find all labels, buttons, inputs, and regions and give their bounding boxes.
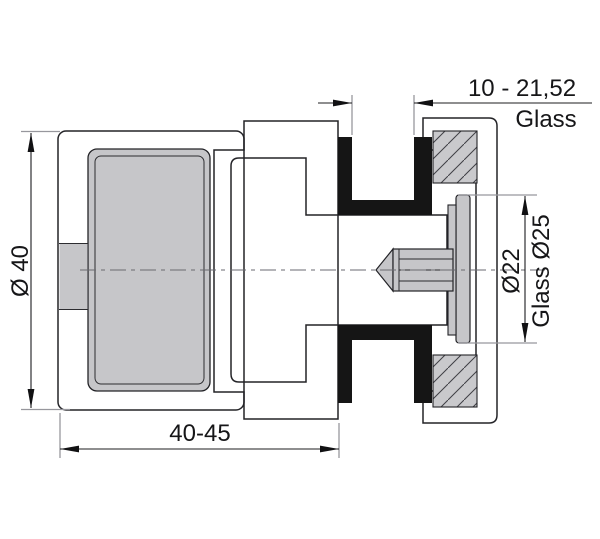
dimension-boss-and-glass-hole: Ø22 Glass Ø25 <box>458 195 555 343</box>
glass-clamp-section-drawing: Ø 40 40-45 10 - 21,52 Glass Ø22 Glass Ø2… <box>0 0 600 539</box>
side-mount-hole <box>60 244 88 310</box>
arrow-down-icon <box>28 389 35 408</box>
glass-hole-diameter-label: Glass Ø25 <box>528 214 555 327</box>
dimension-glass-thickness: 10 - 21,52 Glass <box>318 75 592 135</box>
glass-thickness-label: 10 - 21,52 <box>468 75 576 102</box>
body-diameter-label: Ø 40 <box>7 245 34 297</box>
body-length-label: 40-45 <box>169 420 230 447</box>
arrow-left-icon <box>414 100 433 107</box>
gasket-top <box>338 137 432 215</box>
arrow-up-icon <box>522 196 529 215</box>
gasket-bottom <box>338 325 432 403</box>
arrow-right-icon <box>333 100 352 107</box>
arrow-right-icon <box>320 446 339 453</box>
plate-retainer-bottom <box>433 355 477 407</box>
arrow-up-icon <box>28 133 35 152</box>
boss-diameter-label: Ø22 <box>498 248 525 293</box>
glass-word-label: Glass <box>515 106 576 133</box>
glass-thickness-extension-lines <box>352 95 414 135</box>
plate-retainer-top <box>433 131 477 183</box>
arrow-left-icon <box>60 446 79 453</box>
glass-washer <box>456 195 470 343</box>
technical-drawing-page: Ø 40 40-45 10 - 21,52 Glass Ø22 Glass Ø2… <box>0 0 600 539</box>
